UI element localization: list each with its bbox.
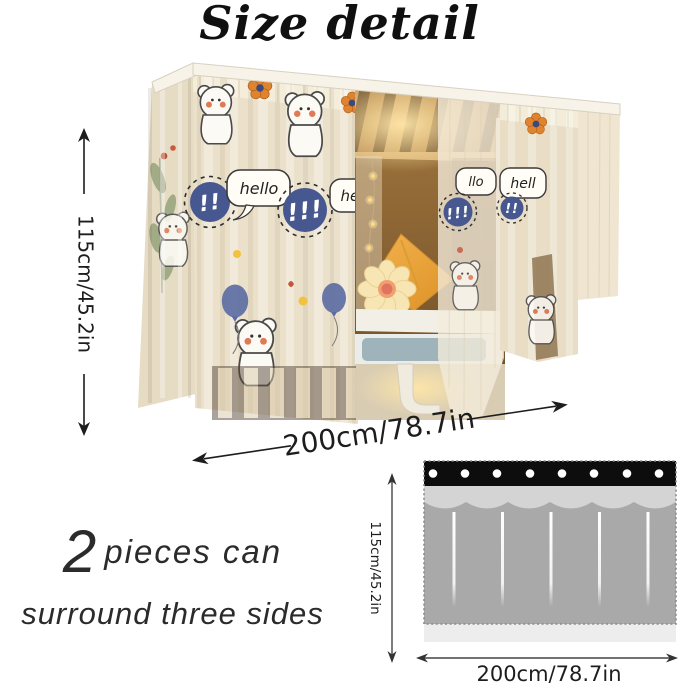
curtain-diagram: 115cm/45.2in 200cm/78.7in <box>356 452 679 685</box>
curtain-fold-right <box>578 103 620 300</box>
diagram-footer-strip <box>424 624 676 642</box>
grommet <box>526 469 535 478</box>
flower-print <box>233 250 241 258</box>
svg-text:hell: hell <box>510 176 535 192</box>
page-title: Size detail <box>0 0 679 50</box>
diagram-height-label: 115cm/45.2in <box>367 521 383 614</box>
svg-text:!!: !! <box>198 190 223 218</box>
note-line2: surround three sides <box>0 596 345 632</box>
svg-text:!!!: !!! <box>285 195 324 228</box>
grommet <box>558 469 567 478</box>
hello-bubble: llo <box>456 168 496 195</box>
inner-curtain: llo !!! <box>438 92 504 418</box>
svg-text:!!!: !!! <box>445 202 471 223</box>
note-line1: pieces can <box>104 533 282 570</box>
grommet <box>429 469 438 478</box>
svg-text:llo: llo <box>468 175 483 190</box>
curtain-panel-right: hell !! <box>497 96 578 362</box>
cherry-print <box>170 145 176 151</box>
photo-height-label: 115cm/45.2in <box>74 215 98 353</box>
note-quantity: 2 <box>63 518 96 585</box>
grommet <box>623 469 632 478</box>
arrow-right-icon <box>551 399 569 413</box>
cherry-print <box>457 247 463 253</box>
size-detail-image: Size detail <box>0 0 679 685</box>
diagram-width-label: 200cm/78.7in <box>476 662 621 685</box>
grommet <box>590 469 599 478</box>
note-text: 2pieces can surround three sides <box>0 522 345 632</box>
diagram-height-dimension <box>388 473 397 663</box>
svg-text:hello: hello <box>240 179 279 198</box>
photo-height-dimension: 115cm/45.2in <box>62 124 106 439</box>
grommet <box>493 469 502 478</box>
flower-print <box>299 297 308 306</box>
grommet <box>655 469 664 478</box>
svg-text:!!: !! <box>505 202 519 217</box>
arrow-left-icon <box>191 452 209 466</box>
grommet <box>461 469 470 478</box>
